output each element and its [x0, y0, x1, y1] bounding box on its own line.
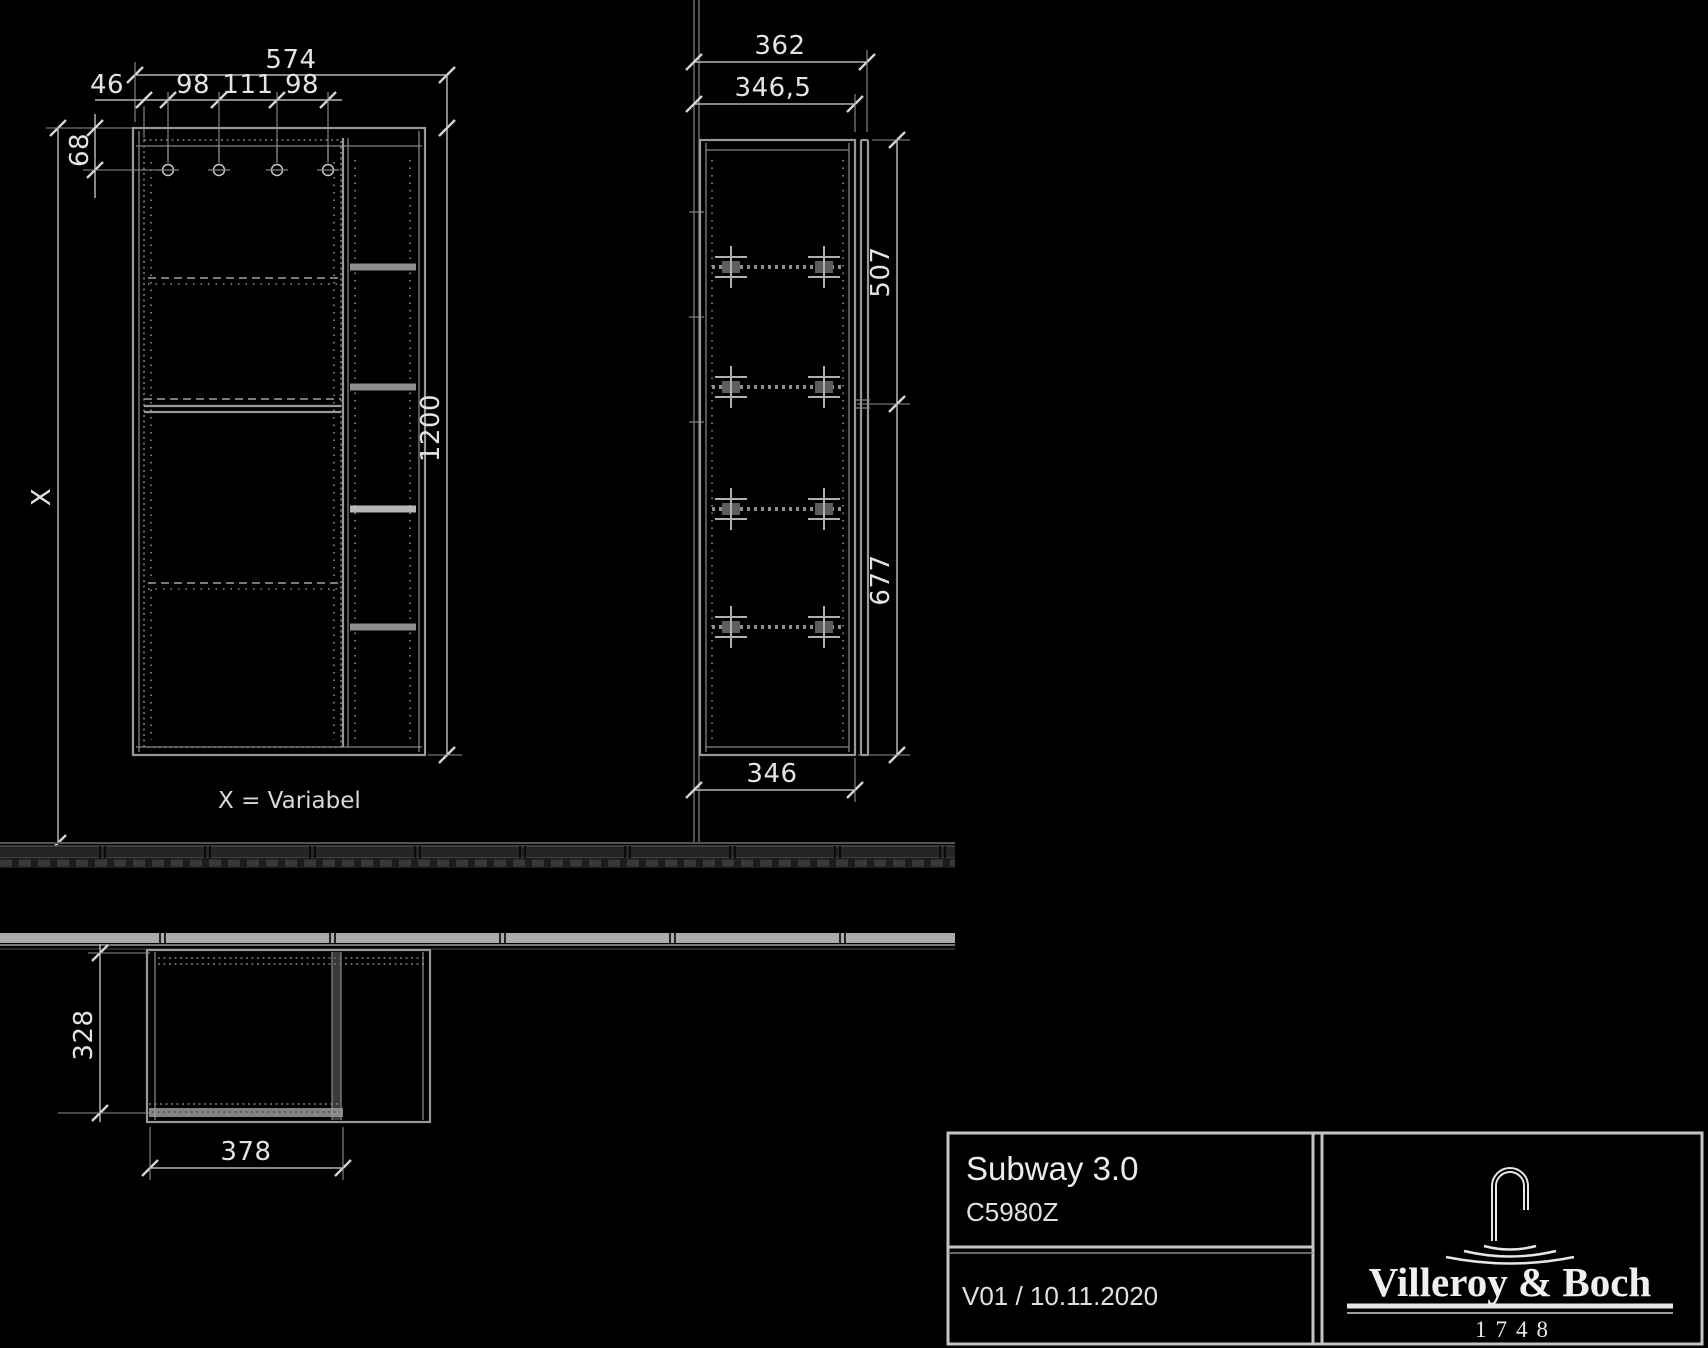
- villeroy-boch-logo: Villeroy & Boch 1748: [1347, 1170, 1673, 1342]
- dim-plan-door-width: 378: [142, 1127, 351, 1180]
- dim-label-1200: 1200: [416, 394, 446, 462]
- side-carcass-outline: [700, 140, 855, 755]
- front-carcass-outline: [133, 128, 425, 755]
- shelf: [350, 624, 416, 631]
- plan-door-slab: [149, 1104, 343, 1117]
- side-back-extension-line: [689, 0, 704, 843]
- dim-label-328: 328: [69, 1009, 99, 1060]
- dim-label-111: 111: [222, 70, 273, 100]
- dim-label-362: 362: [754, 31, 805, 61]
- dim-carcass-depth: 346: [686, 758, 863, 802]
- drawing-canvas: X 68 574 46 98 111 98: [0, 0, 1708, 1348]
- article-number: C5980Z: [966, 1197, 1059, 1227]
- dim-label-346-5: 346,5: [735, 73, 812, 103]
- brand-founding-year: 1748: [1475, 1317, 1557, 1342]
- dim-label-507: 507: [866, 246, 896, 297]
- side-shelves: [712, 246, 843, 648]
- hinge-markers: [157, 146, 339, 176]
- dim-label-68: 68: [65, 133, 95, 167]
- dim-label-677: 677: [866, 554, 896, 605]
- dim-door-heights: 507 677: [857, 132, 910, 763]
- dim-label-46: 46: [90, 70, 124, 100]
- dim-mounting-height: X: [27, 120, 133, 851]
- wall-rail-elevation: [0, 843, 955, 868]
- dim-height: 1200: [416, 75, 462, 763]
- wall-rail-plan: [0, 933, 955, 949]
- shelf: [350, 384, 416, 391]
- front-door-panel: [144, 140, 341, 747]
- plan-view: 328 378: [58, 944, 430, 1180]
- side-view: 362 346,5 507 677 346: [686, 0, 910, 843]
- dim-depth-346-5: 346,5: [686, 73, 863, 132]
- variable-height-note: X = Variabel: [218, 788, 361, 814]
- technical-drawing-sheet: X 68 574 46 98 111 98: [0, 0, 1708, 1348]
- shelf: [350, 264, 416, 271]
- title-block: Subway 3.0 C5980Z V01 / 10.11.2020 Ville…: [948, 1133, 1702, 1344]
- dim-label-x: X: [27, 488, 57, 506]
- product-series: Subway 3.0: [966, 1150, 1138, 1187]
- dim-label-378: 378: [220, 1137, 271, 1167]
- brand-name: Villeroy & Boch: [1369, 1259, 1652, 1305]
- plan-divider-panel: [332, 952, 341, 1120]
- dim-label-98-right: 98: [285, 70, 319, 100]
- dim-top-to-hinge: 68: [65, 114, 160, 198]
- dim-label-98-left: 98: [176, 70, 210, 100]
- plan-carcass-outline: [147, 950, 430, 1122]
- dim-label-346: 346: [746, 759, 797, 789]
- front-open-shelf-column: [343, 138, 416, 747]
- front-view: X 68 574 46 98 111 98: [27, 45, 462, 851]
- villeroy-boch-fountain-icon: [1446, 1170, 1574, 1264]
- dim-plan-depth: 328: [58, 944, 150, 1122]
- version-date: V01 / 10.11.2020: [962, 1281, 1158, 1311]
- shelf: [350, 506, 416, 513]
- side-door-panel: [855, 140, 870, 755]
